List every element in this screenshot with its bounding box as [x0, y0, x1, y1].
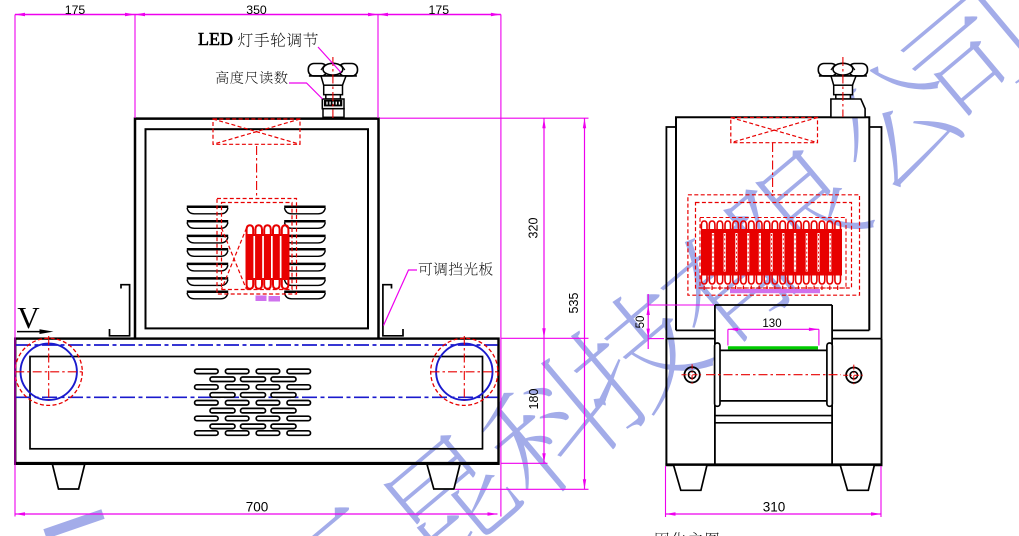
svg-text:LED: LED	[198, 29, 233, 49]
svg-text:535: 535	[567, 293, 581, 314]
svg-text:50: 50	[635, 316, 647, 329]
svg-text:700: 700	[246, 500, 269, 515]
svg-text:V: V	[17, 300, 40, 335]
svg-text:350: 350	[246, 3, 267, 17]
svg-text:175: 175	[429, 3, 450, 17]
svg-text:175: 175	[65, 3, 86, 17]
svg-text:320: 320	[527, 218, 541, 239]
svg-text:180: 180	[527, 389, 541, 410]
svg-text:310: 310	[763, 500, 786, 515]
svg-text:130: 130	[762, 318, 781, 330]
